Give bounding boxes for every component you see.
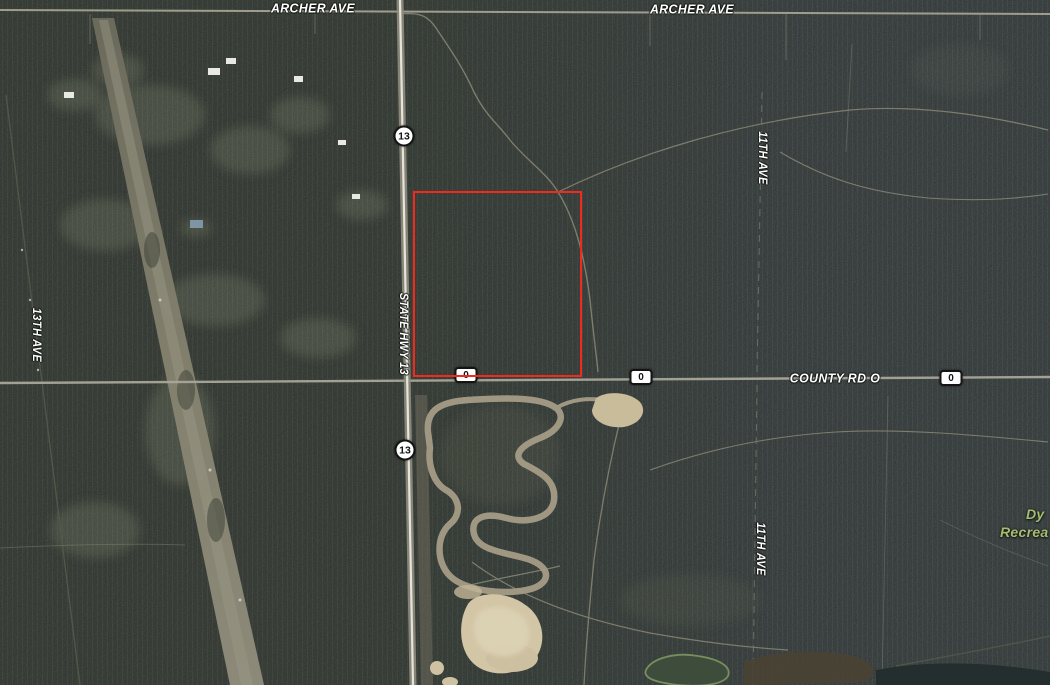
poi-label-green-line2: Recrea	[1000, 524, 1049, 540]
road-label-state-hwy-13: STATE HWY 13	[397, 293, 409, 375]
county-rd-0-badge-east: 0	[940, 370, 963, 386]
hwy-13-shield-north: 13	[394, 126, 415, 147]
poi-label-green-line1: Dy	[1026, 506, 1045, 522]
road-label-county-rd-o: COUNTY RD O	[790, 371, 880, 386]
road-label-archer-ave-east: ARCHER AVE	[650, 2, 734, 17]
map-canvas[interactable]: ARCHER AVE ARCHER AVE COUNTY RD O STATE …	[0, 0, 1050, 685]
hwy-13-shield-south: 13	[395, 440, 416, 461]
road-label-11th-ave-south: 11TH AVE	[754, 522, 766, 575]
blue-roof	[190, 220, 203, 228]
property-boundary-outline	[413, 191, 582, 377]
road-label-13th-ave: 13TH AVE	[30, 308, 42, 362]
road-label-11th-ave-north: 11TH AVE	[756, 131, 768, 184]
county-rd-0-badge-mid: 0	[630, 369, 653, 385]
road-label-archer-ave-west: ARCHER AVE	[271, 1, 355, 16]
